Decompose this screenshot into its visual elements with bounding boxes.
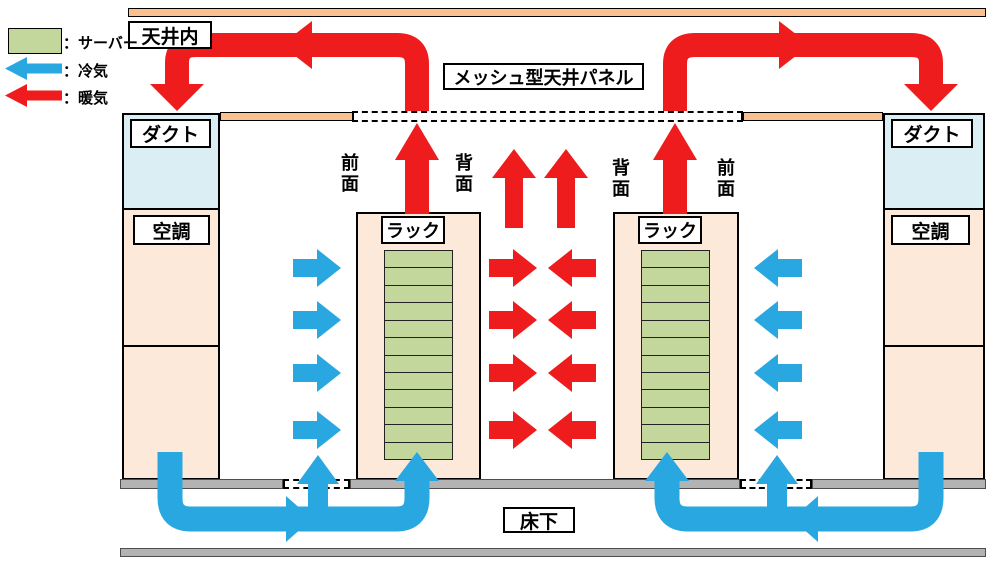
ac-left-label: 空調 [133, 215, 210, 245]
server-unit [641, 267, 710, 285]
cold-aisle-right-shaft [778, 311, 802, 329]
warm-pair-left-head-icon [548, 354, 572, 392]
datacenter-airflow-diagram: 天井内 メッシュ型天井パネル ダクト ダクト 空調 空調 ラック ラック 床下 … [0, 0, 1000, 564]
cold-aisle-right-shaft [778, 259, 802, 277]
server-unit [641, 355, 710, 373]
cold-aisle-right-shaft [778, 421, 802, 439]
server-unit [384, 372, 453, 390]
cold-aisle-left-shaft [293, 311, 317, 329]
unit-right [883, 113, 985, 480]
warm-exhaust-shaft-left [405, 157, 429, 214]
warm-pair-right-head-icon [513, 249, 537, 287]
warm-pair-right-shaft [489, 311, 513, 329]
cold-aisle-left-shaft [293, 259, 317, 277]
warm-air-arrowhead-down-left-icon [150, 84, 204, 111]
warm-pair-right-shaft [489, 259, 513, 277]
warm-pair-left-shaft [572, 259, 596, 277]
ceiling-slab [128, 8, 986, 17]
unit-left [122, 113, 220, 480]
warm-air-arrowhead-right-icon [779, 21, 810, 69]
server-unit [641, 337, 710, 355]
server-unit [641, 442, 710, 460]
perforated-floor-panel-left [283, 479, 350, 489]
server-unit [384, 320, 453, 338]
warm-exhaust-head-right-icon [653, 123, 697, 160]
duct-right-label: ダクト [891, 119, 973, 148]
server-unit [384, 337, 453, 355]
warm-pair-left-shaft [572, 421, 596, 439]
rack-left-label: ラック [381, 216, 445, 244]
mesh-ceiling-panel-label: メッシュ型天井パネル [443, 63, 644, 90]
warm-pair-right-head-icon [513, 301, 537, 339]
hot-aisle-up-arrow-1 [492, 149, 536, 228]
cold-aisle-right-shaft [778, 364, 802, 382]
warm-pair-left-head-icon [548, 411, 572, 449]
server-unit [384, 424, 453, 442]
warm-exhaust-pairs [489, 249, 596, 449]
server-unit [384, 355, 453, 373]
hot-aisle-up-arrow-2 [544, 149, 588, 228]
warm-pair-right-shaft [489, 364, 513, 382]
server-unit [641, 250, 710, 268]
server-unit [641, 302, 710, 320]
warm-pair-left-head-icon [548, 301, 572, 339]
server-unit [384, 285, 453, 303]
perforated-floor-panel-right [740, 479, 812, 489]
rack-left-front-label: 前面 [340, 153, 358, 195]
cold-aisle-right-head-icon [754, 301, 778, 339]
rack-left-back-label: 背面 [454, 153, 472, 195]
rack-right-front-label: 前面 [716, 158, 734, 200]
raised-floor-middle-segment [350, 479, 740, 489]
cold-aisle-left-head-icon [317, 354, 341, 392]
cold-aisle-left-head-icon [317, 301, 341, 339]
cold-aisle-right-head-icon [754, 411, 778, 449]
legend-warm-air-arrow-icon [5, 84, 63, 107]
ceiling-bar-left [220, 112, 353, 121]
legend-server-swatch [8, 28, 62, 54]
warm-pair-right-head-icon [513, 411, 537, 449]
cold-aisle-left-head-icon [317, 411, 341, 449]
warm-air-arrowhead-left-icon [281, 21, 312, 69]
server-unit [384, 302, 453, 320]
server-unit [384, 250, 453, 268]
rack-right-label: ラック [638, 216, 702, 244]
warm-air-ceiling-pipe-right [675, 45, 931, 111]
warm-pair-left-head-icon [548, 249, 572, 287]
cold-aisle-left-shaft [293, 364, 317, 382]
ceiling-space-label: 天井内 [128, 21, 212, 49]
server-unit [384, 267, 453, 285]
server-stack-right [641, 251, 710, 460]
ac-right-label: 空調 [891, 215, 970, 245]
warm-pair-left-shaft [572, 364, 596, 382]
warm-exhaust-shaft-right [663, 157, 687, 214]
legend-warm-air-label: ：暖気 [63, 87, 108, 108]
server-unit [641, 285, 710, 303]
raised-floor-left-segment [120, 479, 283, 489]
warm-pair-left-shaft [572, 311, 596, 329]
cold-aisle-right-head-icon [754, 354, 778, 392]
underfloor-label: 床下 [503, 507, 575, 533]
warm-pair-right-shaft [489, 421, 513, 439]
server-unit [384, 407, 453, 425]
rack-right-back-label: 背面 [611, 158, 629, 200]
server-unit [641, 389, 710, 407]
rack-right-enclosure [613, 212, 739, 480]
legend-cold-air-arrow-icon [5, 57, 63, 80]
ceiling-bar-right [743, 112, 883, 121]
mesh-ceiling-panel [352, 111, 743, 122]
cold-underfloor-arrowhead-left-icon [286, 496, 312, 542]
raised-floor-right-segment [812, 479, 986, 489]
subfloor-slab [120, 548, 986, 557]
server-stack-left [384, 251, 453, 460]
cold-aisle-left-head-icon [317, 249, 341, 287]
ac-left-lower-area [124, 347, 218, 478]
server-unit [641, 407, 710, 425]
server-unit [384, 389, 453, 407]
ac-right-lower-area [885, 347, 983, 478]
warm-air-arrowhead-down-right-icon [904, 84, 958, 111]
server-unit [641, 424, 710, 442]
rack-left-enclosure [356, 212, 481, 480]
legend-server-label: ：サーバー [63, 32, 138, 53]
warm-air-ceiling-pipe-left [177, 45, 417, 111]
server-unit [384, 442, 453, 460]
cold-underfloor-arrowhead-right-icon [792, 496, 818, 542]
server-unit [641, 320, 710, 338]
server-unit [641, 372, 710, 390]
warm-exhaust-head-left-icon [395, 123, 439, 160]
duct-left-label: ダクト [130, 119, 211, 148]
cold-aisle-right-head-icon [754, 249, 778, 287]
legend-cold-air-label: ：冷気 [63, 60, 108, 81]
cold-aisle-left-shaft [293, 421, 317, 439]
warm-pair-right-head-icon [513, 354, 537, 392]
